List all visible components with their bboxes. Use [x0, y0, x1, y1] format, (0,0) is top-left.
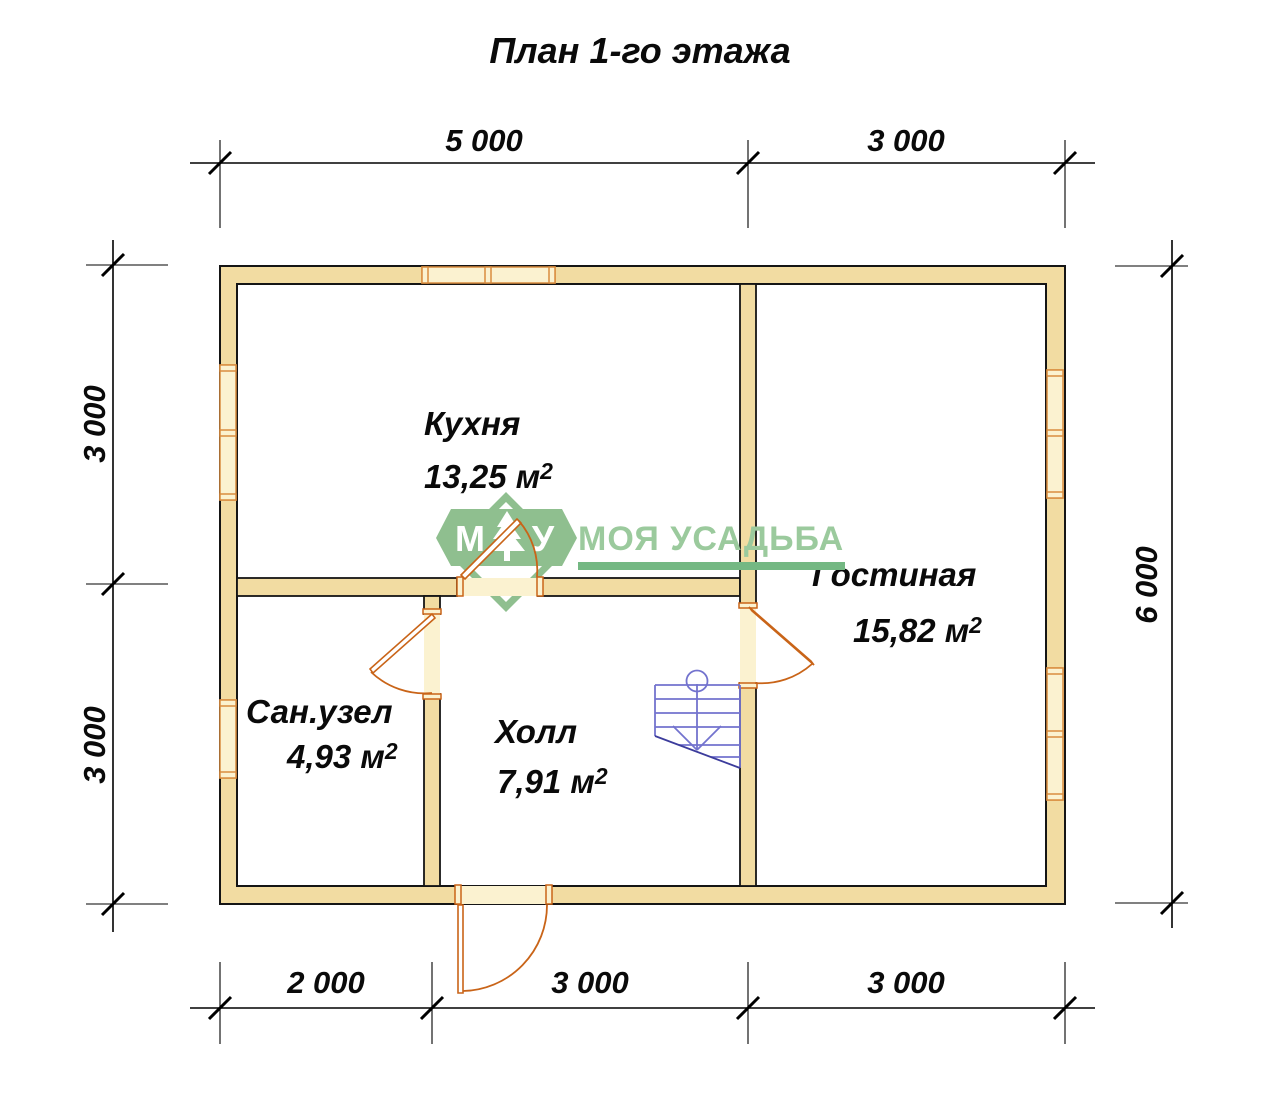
window-left-bathroom	[220, 700, 236, 778]
dim-bottom-2000: 2 000	[226, 965, 426, 1001]
room-area-living: 15,82 м2	[853, 612, 982, 650]
living-room-door	[739, 603, 814, 688]
wall-hall-living-lower	[740, 683, 756, 886]
stairs-direction-arrow	[673, 684, 721, 750]
wall-bath-hall-lower	[424, 694, 440, 886]
bathroom-door	[370, 609, 441, 699]
dim-left-3000-upper: 3 000	[75, 324, 115, 524]
wall-kitchen-bottom-left	[237, 578, 457, 596]
room-label-hall: Холл	[495, 713, 577, 751]
wall-kitchen-bottom-right	[538, 578, 740, 596]
floor-plan: М У	[0, 0, 1280, 1120]
room-label-kitchen: Кухня	[424, 405, 520, 443]
room-area-bathroom: 4,93 м2	[287, 738, 398, 776]
window-right-living-upper	[1047, 370, 1063, 498]
window-left-kitchen	[220, 365, 236, 500]
brand-underline	[578, 562, 845, 570]
window-right-living-lower	[1047, 668, 1063, 800]
dim-left-3000-lower: 3 000	[75, 645, 115, 845]
stairs	[655, 671, 740, 769]
dim-top-3000: 3 000	[806, 123, 1006, 159]
dim-bottom-3000-b: 3 000	[806, 965, 1006, 1001]
dim-bottom-3000-a: 3 000	[490, 965, 690, 1001]
room-label-bathroom: Сан.узел	[246, 693, 393, 731]
room-area-hall: 7,91 м2	[497, 763, 608, 801]
room-area-kitchen: 13,25 м2	[424, 458, 553, 496]
page-title: План 1-го этажа	[340, 30, 940, 72]
dim-top-5000: 5 000	[384, 123, 584, 159]
brand-text: МОЯ УСАДЬБА	[578, 520, 844, 559]
dim-right-6000: 6 000	[1127, 485, 1167, 685]
floor-plan-drawing: М У	[0, 0, 1280, 1120]
logo-letter-left: М	[455, 518, 485, 559]
window-top-kitchen	[422, 267, 555, 283]
